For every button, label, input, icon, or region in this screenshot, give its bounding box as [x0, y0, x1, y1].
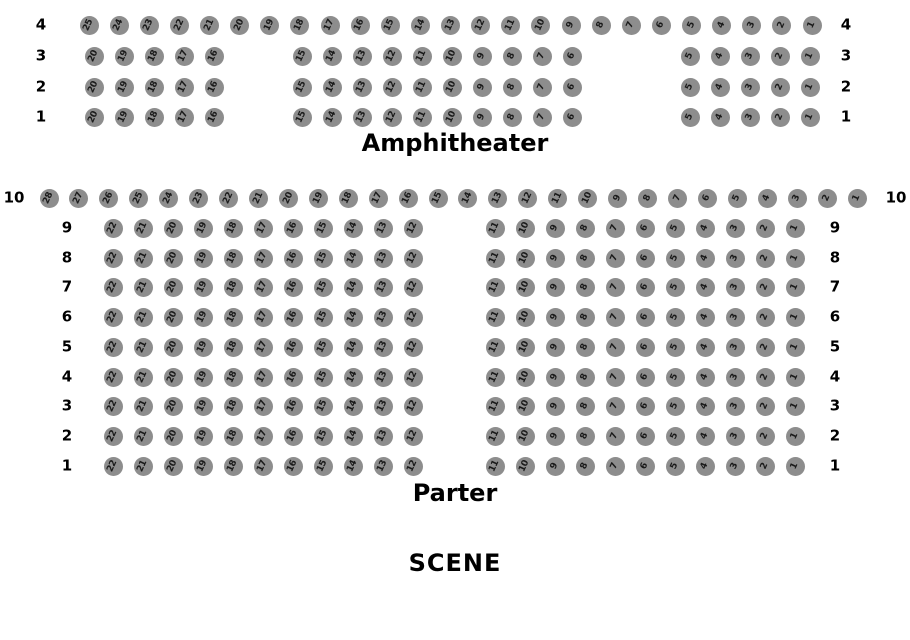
seat[interactable]: 7 [606, 397, 625, 416]
seat[interactable]: 9 [473, 108, 492, 127]
seat[interactable]: 10 [578, 189, 597, 208]
seat[interactable]: 5 [666, 457, 685, 476]
seat[interactable]: 8 [576, 338, 595, 357]
seat[interactable]: 16 [284, 219, 303, 238]
seat[interactable]: 19 [115, 47, 134, 66]
seat[interactable]: 14 [458, 189, 477, 208]
seat[interactable]: 15 [314, 368, 333, 387]
seat[interactable]: 18 [224, 278, 243, 297]
seat[interactable]: 16 [284, 249, 303, 268]
seat[interactable]: 19 [194, 219, 213, 238]
seat[interactable]: 10 [531, 16, 550, 35]
seat[interactable]: 21 [134, 457, 153, 476]
seat[interactable]: 16 [399, 189, 418, 208]
seat[interactable]: 3 [741, 78, 760, 97]
seat[interactable]: 1 [786, 278, 805, 297]
seat[interactable]: 19 [194, 397, 213, 416]
seat[interactable]: 1 [786, 427, 805, 446]
seat[interactable]: 7 [606, 249, 625, 268]
seat[interactable]: 5 [666, 397, 685, 416]
seat[interactable]: 2 [756, 427, 775, 446]
seat[interactable]: 9 [546, 368, 565, 387]
seat[interactable]: 2 [756, 457, 775, 476]
seat[interactable]: 21 [134, 397, 153, 416]
seat[interactable]: 19 [194, 368, 213, 387]
seat[interactable]: 20 [230, 16, 249, 35]
seat[interactable]: 5 [681, 78, 700, 97]
seat[interactable]: 23 [189, 189, 208, 208]
seat[interactable]: 17 [175, 47, 194, 66]
seat[interactable]: 3 [726, 219, 745, 238]
seat[interactable]: 6 [563, 47, 582, 66]
seat[interactable]: 20 [164, 249, 183, 268]
seat[interactable]: 22 [104, 457, 123, 476]
seat[interactable]: 9 [562, 16, 581, 35]
seat[interactable]: 3 [788, 189, 807, 208]
seat[interactable]: 4 [696, 368, 715, 387]
seat[interactable]: 11 [486, 368, 505, 387]
seat[interactable]: 4 [711, 47, 730, 66]
seat[interactable]: 5 [666, 249, 685, 268]
seat[interactable]: 7 [668, 189, 687, 208]
seat[interactable]: 19 [194, 427, 213, 446]
seat[interactable]: 12 [404, 368, 423, 387]
seat[interactable]: 7 [533, 108, 552, 127]
seat[interactable]: 17 [175, 108, 194, 127]
seat[interactable]: 5 [682, 16, 701, 35]
seat[interactable]: 10 [516, 278, 535, 297]
seat[interactable]: 13 [353, 108, 372, 127]
seat[interactable]: 5 [666, 338, 685, 357]
seat[interactable]: 16 [284, 427, 303, 446]
seat[interactable]: 4 [712, 16, 731, 35]
seat[interactable]: 9 [546, 249, 565, 268]
seat[interactable]: 1 [786, 219, 805, 238]
seat[interactable]: 25 [80, 16, 99, 35]
seat[interactable]: 6 [636, 427, 655, 446]
seat[interactable]: 14 [344, 397, 363, 416]
seat[interactable]: 19 [194, 457, 213, 476]
seat[interactable]: 1 [786, 397, 805, 416]
seat[interactable]: 3 [726, 308, 745, 327]
seat[interactable]: 10 [443, 78, 462, 97]
seat[interactable]: 13 [353, 47, 372, 66]
seat[interactable]: 7 [606, 219, 625, 238]
seat[interactable]: 11 [486, 457, 505, 476]
seat[interactable]: 14 [344, 249, 363, 268]
seat[interactable]: 14 [344, 427, 363, 446]
seat[interactable]: 20 [164, 338, 183, 357]
seat[interactable]: 17 [254, 249, 273, 268]
seat[interactable]: 12 [383, 108, 402, 127]
seat[interactable]: 3 [726, 427, 745, 446]
seat[interactable]: 11 [501, 16, 520, 35]
seat[interactable]: 12 [383, 47, 402, 66]
seat[interactable]: 21 [134, 219, 153, 238]
seat[interactable]: 12 [404, 219, 423, 238]
seat[interactable]: 14 [411, 16, 430, 35]
seat[interactable]: 10 [516, 338, 535, 357]
seat[interactable]: 22 [170, 16, 189, 35]
seat[interactable]: 13 [441, 16, 460, 35]
seat[interactable]: 8 [576, 219, 595, 238]
seat[interactable]: 16 [284, 278, 303, 297]
seat[interactable]: 21 [134, 338, 153, 357]
seat[interactable]: 3 [741, 108, 760, 127]
seat[interactable]: 15 [314, 249, 333, 268]
seat[interactable]: 8 [576, 278, 595, 297]
seat[interactable]: 3 [726, 457, 745, 476]
seat[interactable]: 13 [374, 249, 393, 268]
seat[interactable]: 18 [224, 219, 243, 238]
seat[interactable]: 4 [711, 78, 730, 97]
seat[interactable]: 17 [254, 308, 273, 327]
seat[interactable]: 11 [413, 47, 432, 66]
seat[interactable]: 11 [486, 338, 505, 357]
seat[interactable]: 8 [576, 397, 595, 416]
seat[interactable]: 4 [696, 278, 715, 297]
seat[interactable]: 7 [606, 427, 625, 446]
seat[interactable]: 6 [636, 308, 655, 327]
seat[interactable]: 19 [194, 308, 213, 327]
seat[interactable]: 18 [224, 457, 243, 476]
seat[interactable]: 9 [608, 189, 627, 208]
seat[interactable]: 4 [696, 338, 715, 357]
seat[interactable]: 24 [159, 189, 178, 208]
seat[interactable]: 4 [696, 457, 715, 476]
seat[interactable]: 10 [516, 308, 535, 327]
seat[interactable]: 8 [503, 78, 522, 97]
seat[interactable]: 1 [786, 338, 805, 357]
seat[interactable]: 13 [353, 78, 372, 97]
seat[interactable]: 22 [104, 397, 123, 416]
seat[interactable]: 3 [726, 397, 745, 416]
seat[interactable]: 18 [145, 78, 164, 97]
seat[interactable]: 23 [140, 16, 159, 35]
seat[interactable]: 7 [533, 78, 552, 97]
seat[interactable]: 2 [771, 108, 790, 127]
seat[interactable]: 2 [756, 219, 775, 238]
seat[interactable]: 7 [606, 338, 625, 357]
seat[interactable]: 12 [383, 78, 402, 97]
seat[interactable]: 22 [219, 189, 238, 208]
seat[interactable]: 1 [801, 108, 820, 127]
seat[interactable]: 11 [486, 308, 505, 327]
seat[interactable]: 18 [224, 249, 243, 268]
seat[interactable]: 19 [260, 16, 279, 35]
seat[interactable]: 1 [848, 189, 867, 208]
seat[interactable]: 21 [134, 278, 153, 297]
seat[interactable]: 18 [145, 108, 164, 127]
seat[interactable]: 3 [726, 338, 745, 357]
seat[interactable]: 3 [726, 249, 745, 268]
seat[interactable]: 18 [224, 308, 243, 327]
seat[interactable]: 1 [786, 308, 805, 327]
seat[interactable]: 17 [369, 189, 388, 208]
seat[interactable]: 4 [696, 397, 715, 416]
seat[interactable]: 14 [323, 108, 342, 127]
seat[interactable]: 10 [516, 427, 535, 446]
seat[interactable]: 9 [546, 457, 565, 476]
seat[interactable]: 6 [636, 397, 655, 416]
seat[interactable]: 15 [293, 47, 312, 66]
seat[interactable]: 15 [381, 16, 400, 35]
seat[interactable]: 22 [104, 219, 123, 238]
seat[interactable]: 12 [518, 189, 537, 208]
seat[interactable]: 7 [606, 457, 625, 476]
seat[interactable]: 18 [224, 397, 243, 416]
seat[interactable]: 15 [314, 278, 333, 297]
seat[interactable]: 19 [194, 338, 213, 357]
seat[interactable]: 20 [85, 108, 104, 127]
seat[interactable]: 6 [636, 219, 655, 238]
seat[interactable]: 17 [254, 338, 273, 357]
seat[interactable]: 8 [576, 308, 595, 327]
seat[interactable]: 2 [756, 397, 775, 416]
seat[interactable]: 11 [413, 78, 432, 97]
seat[interactable]: 2 [772, 16, 791, 35]
seat[interactable]: 1 [801, 78, 820, 97]
seat[interactable]: 9 [546, 427, 565, 446]
seat[interactable]: 13 [374, 308, 393, 327]
seat[interactable]: 2 [756, 308, 775, 327]
seat[interactable]: 12 [404, 457, 423, 476]
seat[interactable]: 20 [164, 457, 183, 476]
seat[interactable]: 4 [758, 189, 777, 208]
seat[interactable]: 7 [606, 278, 625, 297]
seat[interactable]: 9 [473, 78, 492, 97]
seat[interactable]: 9 [546, 219, 565, 238]
seat[interactable]: 21 [134, 308, 153, 327]
seat[interactable]: 5 [666, 427, 685, 446]
seat[interactable]: 5 [681, 108, 700, 127]
seat[interactable]: 6 [636, 368, 655, 387]
seat[interactable]: 16 [284, 368, 303, 387]
seat[interactable]: 4 [711, 108, 730, 127]
seat[interactable]: 20 [164, 278, 183, 297]
seat[interactable]: 8 [503, 108, 522, 127]
seat[interactable]: 1 [786, 368, 805, 387]
seat[interactable]: 20 [164, 427, 183, 446]
seat[interactable]: 21 [134, 427, 153, 446]
seat[interactable]: 20 [164, 219, 183, 238]
seat[interactable]: 17 [175, 78, 194, 97]
seat[interactable]: 8 [576, 249, 595, 268]
seat[interactable]: 15 [314, 457, 333, 476]
seat[interactable]: 11 [486, 219, 505, 238]
seat[interactable]: 22 [104, 308, 123, 327]
seat[interactable]: 6 [636, 249, 655, 268]
seat[interactable]: 16 [284, 457, 303, 476]
seat[interactable]: 22 [104, 368, 123, 387]
seat[interactable]: 4 [696, 308, 715, 327]
seat[interactable]: 15 [293, 78, 312, 97]
seat[interactable]: 6 [652, 16, 671, 35]
seat[interactable]: 2 [771, 47, 790, 66]
seat[interactable]: 2 [756, 338, 775, 357]
seat[interactable]: 5 [666, 308, 685, 327]
seat[interactable]: 4 [696, 219, 715, 238]
seat[interactable]: 13 [374, 427, 393, 446]
seat[interactable]: 20 [164, 368, 183, 387]
seat[interactable]: 11 [486, 397, 505, 416]
seat[interactable]: 6 [636, 338, 655, 357]
seat[interactable]: 8 [503, 47, 522, 66]
seat[interactable]: 5 [666, 368, 685, 387]
seat[interactable]: 19 [115, 78, 134, 97]
seat[interactable]: 9 [546, 338, 565, 357]
seat[interactable]: 1 [786, 457, 805, 476]
seat[interactable]: 10 [516, 219, 535, 238]
seat[interactable]: 5 [681, 47, 700, 66]
seat[interactable]: 14 [344, 338, 363, 357]
seat[interactable]: 2 [818, 189, 837, 208]
seat[interactable]: 19 [194, 278, 213, 297]
seat[interactable]: 22 [104, 249, 123, 268]
seat[interactable]: 16 [284, 397, 303, 416]
seat[interactable]: 14 [344, 219, 363, 238]
seat[interactable]: 1 [786, 249, 805, 268]
seat[interactable]: 12 [404, 397, 423, 416]
seat[interactable]: 17 [254, 368, 273, 387]
seat[interactable]: 9 [546, 278, 565, 297]
seat[interactable]: 15 [314, 427, 333, 446]
seat[interactable]: 6 [698, 189, 717, 208]
seat[interactable]: 20 [164, 308, 183, 327]
seat[interactable]: 15 [314, 338, 333, 357]
seat[interactable]: 13 [374, 457, 393, 476]
seat[interactable]: 25 [129, 189, 148, 208]
seat[interactable]: 2 [756, 249, 775, 268]
seat[interactable]: 15 [314, 219, 333, 238]
seat[interactable]: 1 [801, 47, 820, 66]
seat[interactable]: 7 [606, 308, 625, 327]
seat[interactable]: 13 [374, 397, 393, 416]
seat[interactable]: 16 [284, 308, 303, 327]
seat[interactable]: 19 [115, 108, 134, 127]
seat[interactable]: 20 [164, 397, 183, 416]
seat[interactable]: 15 [314, 397, 333, 416]
seat[interactable]: 14 [323, 78, 342, 97]
seat[interactable]: 16 [205, 108, 224, 127]
seat[interactable]: 18 [224, 427, 243, 446]
seat[interactable]: 16 [205, 47, 224, 66]
seat[interactable]: 17 [254, 397, 273, 416]
seat[interactable]: 17 [254, 457, 273, 476]
seat[interactable]: 18 [224, 368, 243, 387]
seat[interactable]: 8 [576, 427, 595, 446]
seat[interactable]: 21 [134, 368, 153, 387]
seat[interactable]: 8 [576, 457, 595, 476]
seat[interactable]: 11 [486, 427, 505, 446]
seat[interactable]: 14 [323, 47, 342, 66]
seat[interactable]: 21 [200, 16, 219, 35]
seat[interactable]: 20 [85, 78, 104, 97]
seat[interactable]: 12 [471, 16, 490, 35]
seat[interactable]: 8 [576, 368, 595, 387]
seat[interactable]: 10 [516, 249, 535, 268]
seat[interactable]: 17 [321, 16, 340, 35]
seat[interactable]: 5 [666, 278, 685, 297]
seat[interactable]: 27 [69, 189, 88, 208]
seat[interactable]: 6 [636, 457, 655, 476]
seat[interactable]: 10 [516, 457, 535, 476]
seat[interactable]: 1 [803, 16, 822, 35]
seat[interactable]: 18 [290, 16, 309, 35]
seat[interactable]: 11 [486, 278, 505, 297]
seat[interactable]: 9 [546, 308, 565, 327]
seat[interactable]: 14 [344, 457, 363, 476]
seat[interactable]: 13 [374, 338, 393, 357]
seat[interactable]: 13 [374, 368, 393, 387]
seat[interactable]: 10 [516, 397, 535, 416]
seat[interactable]: 28 [40, 189, 59, 208]
seat[interactable]: 10 [443, 47, 462, 66]
seat[interactable]: 20 [85, 47, 104, 66]
seat[interactable]: 10 [516, 368, 535, 387]
seat[interactable]: 10 [443, 108, 462, 127]
seat[interactable]: 15 [429, 189, 448, 208]
seat[interactable]: 5 [728, 189, 747, 208]
seat[interactable]: 14 [344, 308, 363, 327]
seat[interactable]: 26 [99, 189, 118, 208]
seat[interactable]: 3 [741, 47, 760, 66]
seat[interactable]: 18 [339, 189, 358, 208]
seat[interactable]: 9 [546, 397, 565, 416]
seat[interactable]: 22 [104, 338, 123, 357]
seat[interactable]: 16 [351, 16, 370, 35]
seat[interactable]: 12 [404, 308, 423, 327]
seat[interactable]: 13 [488, 189, 507, 208]
seat[interactable]: 8 [638, 189, 657, 208]
seat[interactable]: 4 [696, 249, 715, 268]
seat[interactable]: 5 [666, 219, 685, 238]
seat[interactable]: 7 [533, 47, 552, 66]
seat[interactable]: 2 [756, 368, 775, 387]
seat[interactable]: 17 [254, 278, 273, 297]
seat[interactable]: 14 [344, 278, 363, 297]
seat[interactable]: 20 [279, 189, 298, 208]
seat[interactable]: 19 [194, 249, 213, 268]
seat[interactable]: 3 [726, 368, 745, 387]
seat[interactable]: 7 [622, 16, 641, 35]
seat[interactable]: 21 [249, 189, 268, 208]
seat[interactable]: 15 [293, 108, 312, 127]
seat[interactable]: 13 [374, 278, 393, 297]
seat[interactable]: 8 [592, 16, 611, 35]
seat[interactable]: 14 [344, 368, 363, 387]
seat[interactable]: 9 [473, 47, 492, 66]
seat[interactable]: 15 [314, 308, 333, 327]
seat[interactable]: 6 [563, 78, 582, 97]
seat[interactable]: 19 [309, 189, 328, 208]
seat[interactable]: 22 [104, 278, 123, 297]
seat[interactable]: 21 [134, 249, 153, 268]
seat[interactable]: 12 [404, 249, 423, 268]
seat[interactable]: 17 [254, 427, 273, 446]
seat[interactable]: 2 [756, 278, 775, 297]
seat[interactable]: 11 [548, 189, 567, 208]
seat[interactable]: 16 [284, 338, 303, 357]
seat[interactable]: 13 [374, 219, 393, 238]
seat[interactable]: 12 [404, 278, 423, 297]
seat[interactable]: 24 [110, 16, 129, 35]
seat[interactable]: 6 [563, 108, 582, 127]
seat[interactable]: 16 [205, 78, 224, 97]
seat[interactable]: 22 [104, 427, 123, 446]
seat[interactable]: 3 [726, 278, 745, 297]
seat[interactable]: 11 [486, 249, 505, 268]
